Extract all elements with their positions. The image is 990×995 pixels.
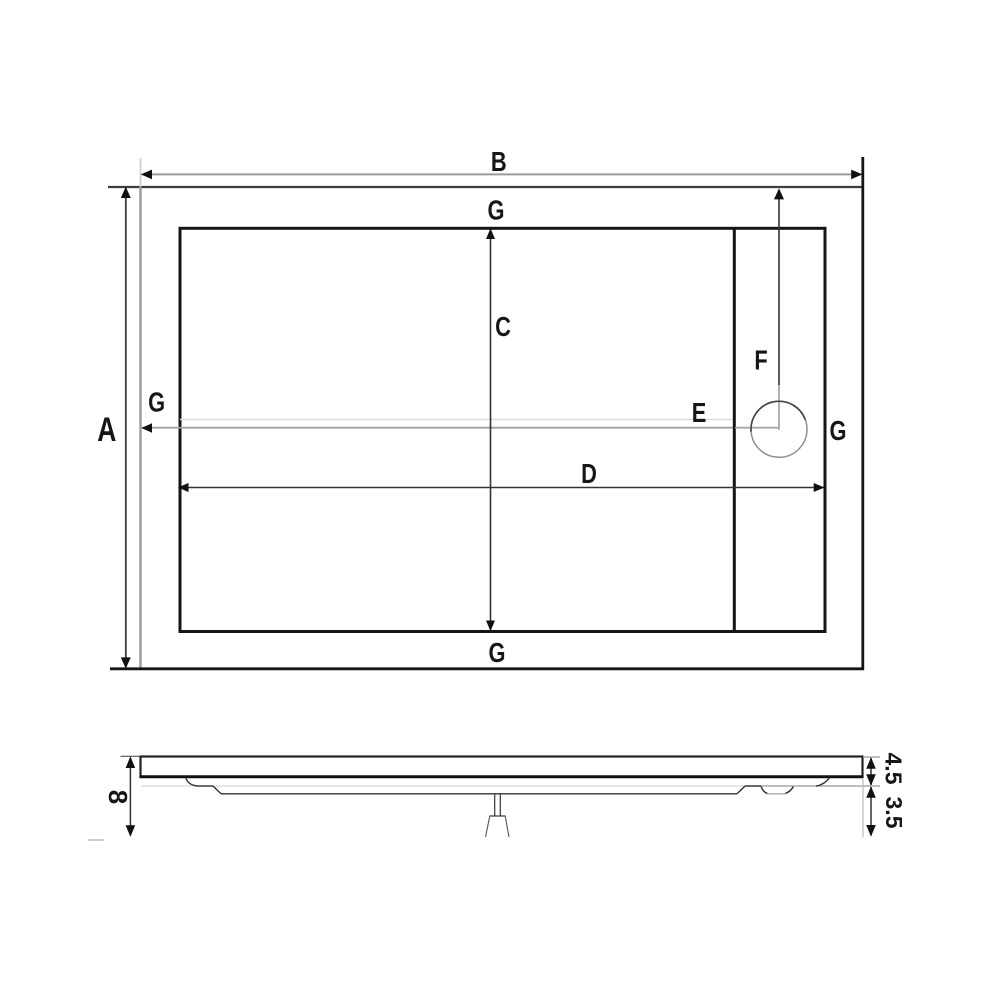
svg-text:G: G: [830, 415, 847, 446]
svg-text:G: G: [489, 637, 506, 668]
svg-text:4.5: 4.5: [881, 753, 907, 785]
svg-text:F: F: [754, 345, 767, 376]
svg-text:G: G: [148, 387, 165, 418]
svg-text:C: C: [495, 311, 511, 342]
svg-text:8: 8: [103, 790, 133, 804]
svg-text:E: E: [692, 397, 707, 428]
svg-text:G: G: [488, 195, 505, 226]
svg-text:B: B: [491, 147, 507, 178]
svg-text:D: D: [581, 459, 597, 490]
svg-text:3.5: 3.5: [881, 797, 907, 829]
svg-text:A: A: [97, 411, 116, 449]
